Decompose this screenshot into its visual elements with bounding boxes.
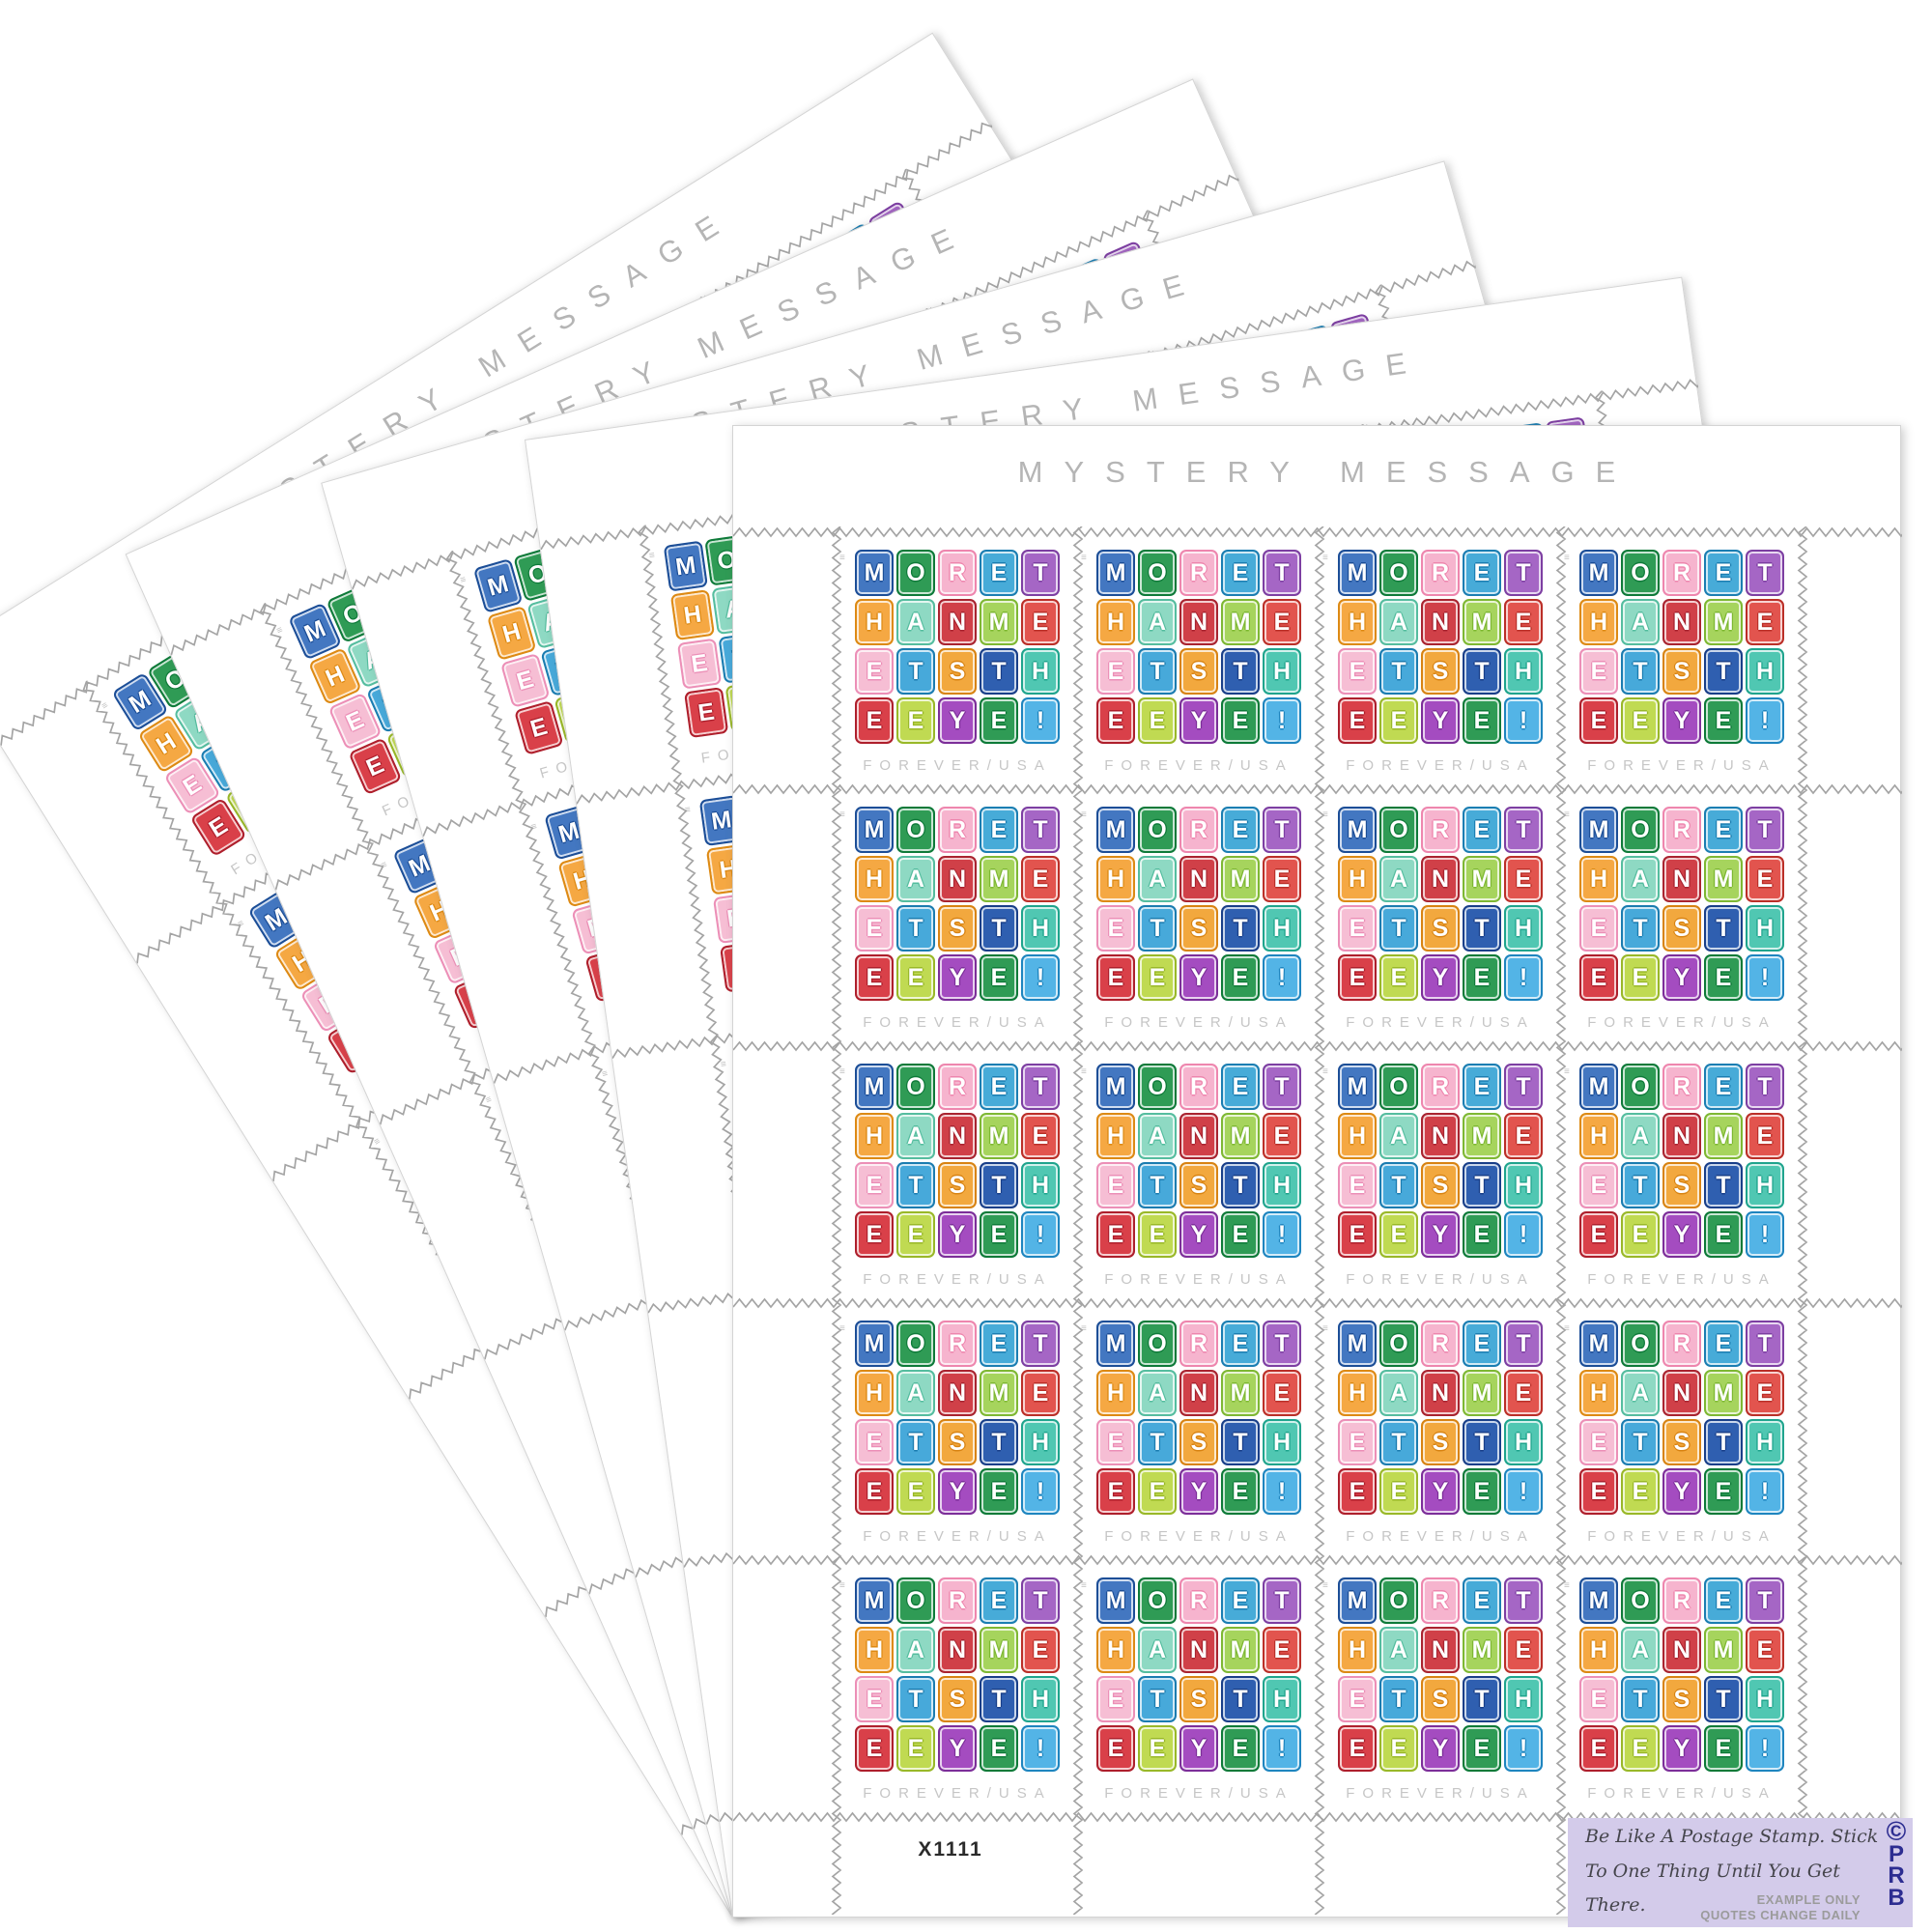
letter-tile-e: E bbox=[1021, 599, 1060, 645]
letter-tile-t: T bbox=[980, 648, 1018, 695]
letter-tile-e: E bbox=[1379, 954, 1418, 1001]
letter-tile-e: E bbox=[1338, 1162, 1377, 1208]
letter-tile-exclamation: ! bbox=[1746, 954, 1784, 1001]
letter-tile-m: M bbox=[1221, 856, 1260, 902]
letter-tile-s: S bbox=[1421, 905, 1460, 952]
letter-tile-o: O bbox=[1138, 550, 1177, 596]
letter-tile-t: T bbox=[1746, 1064, 1784, 1110]
letter-tile-grid: MORETHANMEETSTHEEYE! bbox=[1096, 550, 1301, 744]
letter-tile-h: H bbox=[1021, 1419, 1060, 1465]
letter-tile-a: A bbox=[896, 1627, 935, 1673]
disclaimer-line-1: EXAMPLE ONLY bbox=[1700, 1892, 1861, 1908]
letter-tile-y: Y bbox=[1662, 1468, 1701, 1515]
letter-tile-h: H bbox=[670, 589, 715, 640]
letter-tile-e: E bbox=[1221, 1064, 1260, 1110]
letter-tile-t: T bbox=[1504, 1321, 1543, 1367]
letter-tile-e: E bbox=[1504, 1370, 1543, 1416]
letter-tile-m: M bbox=[1579, 1321, 1618, 1367]
letter-tile-e: E bbox=[855, 1676, 894, 1722]
letter-tile-y: Y bbox=[1421, 1211, 1460, 1258]
letter-tile-t: T bbox=[1463, 905, 1501, 952]
letter-tile-m: M bbox=[855, 807, 894, 853]
letter-tile-e: E bbox=[980, 1577, 1018, 1624]
letter-tile-o: O bbox=[1621, 1064, 1660, 1110]
letter-tile-y: Y bbox=[1179, 1468, 1218, 1515]
letter-tile-e: E bbox=[1746, 599, 1784, 645]
letter-tile-s: S bbox=[1179, 1676, 1218, 1722]
letter-tile-e: E bbox=[980, 1064, 1018, 1110]
letter-tile-exclamation: ! bbox=[1504, 1211, 1543, 1258]
stamp: ≡MORETHANMEETSTHEEYE!FOREVER/USA bbox=[837, 1560, 1078, 1817]
letter-tile-e: E bbox=[980, 1725, 1018, 1772]
letter-tile-n: N bbox=[938, 1370, 977, 1416]
stamp: ≡MORETHANMEETSTHEEYE!FOREVER/USA bbox=[1078, 1560, 1320, 1817]
letter-tile-y: Y bbox=[1179, 697, 1218, 744]
perforation-line bbox=[1314, 526, 1325, 1915]
letter-tile-r: R bbox=[938, 1577, 977, 1624]
letter-tile-e: E bbox=[1021, 1370, 1060, 1416]
letter-tile-y: Y bbox=[938, 1211, 977, 1258]
letter-tile-e: E bbox=[855, 648, 894, 695]
letter-tile-n: N bbox=[1179, 1113, 1218, 1159]
letter-tile-h: H bbox=[855, 856, 894, 902]
letter-tile-e: E bbox=[980, 954, 1018, 1001]
stamp: ≡MORETHANMEETSTHEEYE!FOREVER/USA bbox=[1320, 1303, 1561, 1560]
letter-tile-s: S bbox=[1421, 648, 1460, 695]
letter-tile-o: O bbox=[1138, 1577, 1177, 1624]
letter-tile-e: E bbox=[1096, 1725, 1135, 1772]
letter-tile-s: S bbox=[938, 648, 977, 695]
stamp: ≡MORETHANMEETSTHEEYE!FOREVER/USA bbox=[1320, 532, 1561, 789]
letter-tile-e: E bbox=[1704, 1577, 1743, 1624]
letter-tile-e: E bbox=[1621, 1468, 1660, 1515]
letter-tile-e: E bbox=[1096, 1468, 1135, 1515]
letter-tile-grid: MORETHANMEETSTHEEYE! bbox=[1579, 550, 1784, 744]
letter-tile-a: A bbox=[1621, 1627, 1660, 1673]
watermark-letter-b: B bbox=[1883, 1888, 1910, 1909]
letter-tile-h: H bbox=[855, 1370, 894, 1416]
letter-tile-r: R bbox=[1662, 1321, 1701, 1367]
stamp: ≡MORETHANMEETSTHEEYE!FOREVER/USA bbox=[1561, 1560, 1803, 1817]
stamp: ≡MORETHANMEETSTHEEYE!FOREVER/USA bbox=[1078, 532, 1320, 789]
letter-tile-h: H bbox=[855, 1113, 894, 1159]
letter-tile-r: R bbox=[1421, 1064, 1460, 1110]
letter-tile-m: M bbox=[855, 1321, 894, 1367]
letter-tile-e: E bbox=[1463, 1468, 1501, 1515]
letter-tile-h: H bbox=[1746, 648, 1784, 695]
letter-tile-e: E bbox=[1096, 648, 1135, 695]
letter-tile-s: S bbox=[1179, 1162, 1218, 1208]
letter-tile-exclamation: ! bbox=[1746, 697, 1784, 744]
letter-tile-h: H bbox=[1096, 1113, 1135, 1159]
letter-tile-m: M bbox=[1096, 550, 1135, 596]
perforation-line bbox=[831, 526, 842, 1915]
letter-tile-t: T bbox=[1263, 1064, 1301, 1110]
stamp: ≡MORETHANMEETSTHEEYE!FOREVER/USA bbox=[1078, 1303, 1320, 1560]
letter-tile-n: N bbox=[1662, 599, 1701, 645]
letter-tile-e: E bbox=[855, 954, 894, 1001]
letter-tile-e: E bbox=[1704, 550, 1743, 596]
letter-tile-o: O bbox=[896, 1321, 935, 1367]
letter-tile-grid: MORETHANMEETSTHEEYE! bbox=[1096, 1577, 1301, 1772]
letter-tile-e: E bbox=[1746, 1370, 1784, 1416]
letter-tile-m: M bbox=[1463, 1113, 1501, 1159]
letter-tile-e: E bbox=[1463, 954, 1501, 1001]
letter-tile-e: E bbox=[1504, 1627, 1543, 1673]
letter-tile-t: T bbox=[1379, 1162, 1418, 1208]
letter-tile-t: T bbox=[1021, 1064, 1060, 1110]
letter-tile-grid: MORETHANMEETSTHEEYE! bbox=[1338, 1321, 1543, 1515]
denomination-label: FOREVER/USA bbox=[849, 1014, 1065, 1031]
letter-tile-e: E bbox=[1704, 1064, 1743, 1110]
letter-tile-e: E bbox=[1338, 1419, 1377, 1465]
letter-tile-e: E bbox=[1621, 954, 1660, 1001]
letter-tile-m: M bbox=[1221, 599, 1260, 645]
letter-tile-r: R bbox=[938, 1064, 977, 1110]
stamp: ≡MORETHANMEETSTHEEYE!FOREVER/USA bbox=[1561, 1046, 1803, 1303]
letter-tile-y: Y bbox=[1179, 1725, 1218, 1772]
letter-tile-e: E bbox=[855, 905, 894, 952]
letter-tile-o: O bbox=[1379, 1064, 1418, 1110]
letter-tile-exclamation: ! bbox=[1263, 954, 1301, 1001]
letter-tile-e: E bbox=[1221, 550, 1260, 596]
letter-tile-e: E bbox=[1463, 697, 1501, 744]
letter-tile-e: E bbox=[1338, 905, 1377, 952]
letter-tile-h: H bbox=[1504, 1676, 1543, 1722]
letter-tile-h: H bbox=[1746, 1162, 1784, 1208]
letter-tile-e: E bbox=[1463, 1321, 1501, 1367]
letter-tile-m: M bbox=[1221, 1113, 1260, 1159]
letter-tile-e: E bbox=[1504, 599, 1543, 645]
letter-tile-m: M bbox=[1221, 1370, 1260, 1416]
letter-tile-e: E bbox=[1263, 599, 1301, 645]
letter-tile-grid: MORETHANMEETSTHEEYE! bbox=[1338, 1064, 1543, 1258]
letter-tile-h: H bbox=[1021, 905, 1060, 952]
letter-tile-n: N bbox=[938, 1113, 977, 1159]
letter-tile-e: E bbox=[896, 954, 935, 1001]
letter-tile-y: Y bbox=[1421, 954, 1460, 1001]
letter-tile-h: H bbox=[1021, 1676, 1060, 1722]
letter-tile-m: M bbox=[1704, 1627, 1743, 1673]
letter-tile-h: H bbox=[1263, 1676, 1301, 1722]
letter-tile-m: M bbox=[855, 1577, 894, 1624]
letter-tile-t: T bbox=[1221, 1676, 1260, 1722]
letter-tile-t: T bbox=[1138, 1162, 1177, 1208]
letter-tile-y: Y bbox=[1421, 1468, 1460, 1515]
letter-tile-e: E bbox=[1704, 807, 1743, 853]
letter-tile-t: T bbox=[896, 905, 935, 952]
letter-tile-h: H bbox=[1338, 599, 1377, 645]
letter-tile-exclamation: ! bbox=[1504, 1468, 1543, 1515]
letter-tile-t: T bbox=[980, 1162, 1018, 1208]
letter-tile-o: O bbox=[896, 1064, 935, 1110]
letter-tile-h: H bbox=[1746, 1419, 1784, 1465]
letter-tile-e: E bbox=[1138, 1725, 1177, 1772]
letter-tile-t: T bbox=[1138, 1419, 1177, 1465]
denomination-label: FOREVER/USA bbox=[1574, 1785, 1790, 1802]
letter-tile-s: S bbox=[938, 1162, 977, 1208]
letter-tile-r: R bbox=[1662, 1577, 1701, 1624]
perforation-line bbox=[1555, 526, 1567, 1915]
letter-tile-t: T bbox=[1463, 1162, 1501, 1208]
letter-tile-m: M bbox=[855, 1064, 894, 1110]
letter-tile-h: H bbox=[1579, 1370, 1618, 1416]
letter-tile-e: E bbox=[1221, 807, 1260, 853]
denomination-label: FOREVER/USA bbox=[1574, 757, 1790, 774]
letter-tile-t: T bbox=[1746, 1321, 1784, 1367]
letter-tile-o: O bbox=[1138, 807, 1177, 853]
letter-tile-e: E bbox=[1704, 697, 1743, 744]
letter-tile-e: E bbox=[855, 1162, 894, 1208]
letter-tile-o: O bbox=[896, 550, 935, 596]
letter-tile-m: M bbox=[1463, 1627, 1501, 1673]
denomination-label: FOREVER/USA bbox=[849, 1271, 1065, 1288]
letter-tile-e: E bbox=[1579, 1676, 1618, 1722]
letter-tile-m: M bbox=[1096, 1577, 1135, 1624]
letter-tile-e: E bbox=[1621, 697, 1660, 744]
letter-tile-e: E bbox=[1221, 1468, 1260, 1515]
letter-tile-h: H bbox=[1263, 1419, 1301, 1465]
letter-tile-t: T bbox=[1463, 648, 1501, 695]
stamp: ≡MORETHANMEETSTHEEYE!FOREVER/USA bbox=[1561, 789, 1803, 1046]
letter-tile-h: H bbox=[1746, 905, 1784, 952]
letter-tile-t: T bbox=[1621, 905, 1660, 952]
letter-tile-s: S bbox=[1662, 1419, 1701, 1465]
letter-tile-y: Y bbox=[1179, 1211, 1218, 1258]
letter-tile-grid: MORETHANMEETSTHEEYE! bbox=[855, 550, 1060, 744]
disclaimer-line-2: QUOTES CHANGE DAILY bbox=[1700, 1908, 1861, 1923]
letter-tile-r: R bbox=[1421, 550, 1460, 596]
letter-tile-t: T bbox=[1221, 905, 1260, 952]
letter-tile-t: T bbox=[1221, 648, 1260, 695]
letter-tile-s: S bbox=[938, 1419, 977, 1465]
letter-tile-e: E bbox=[896, 1211, 935, 1258]
letter-tile-e: E bbox=[1221, 1725, 1260, 1772]
letter-tile-e: E bbox=[1579, 1468, 1618, 1515]
letter-tile-o: O bbox=[1379, 550, 1418, 596]
letter-tile-exclamation: ! bbox=[1263, 1468, 1301, 1515]
letter-tile-e: E bbox=[1746, 856, 1784, 902]
letter-tile-o: O bbox=[1379, 1577, 1418, 1624]
letter-tile-n: N bbox=[1421, 1627, 1460, 1673]
letter-tile-e: E bbox=[1463, 1211, 1501, 1258]
letter-tile-h: H bbox=[1579, 856, 1618, 902]
letter-tile-h: H bbox=[1263, 648, 1301, 695]
letter-tile-s: S bbox=[1421, 1162, 1460, 1208]
letter-tile-m: M bbox=[980, 1627, 1018, 1673]
stamp: ≡MORETHANMEETSTHEEYE!FOREVER/USA bbox=[837, 789, 1078, 1046]
letter-tile-r: R bbox=[1662, 550, 1701, 596]
letter-tile-exclamation: ! bbox=[1021, 697, 1060, 744]
letter-tile-grid: MORETHANMEETSTHEEYE! bbox=[855, 807, 1060, 1001]
letter-tile-t: T bbox=[1379, 1419, 1418, 1465]
letter-tile-h: H bbox=[1021, 648, 1060, 695]
letter-tile-e: E bbox=[1621, 1725, 1660, 1772]
letter-tile-m: M bbox=[1463, 856, 1501, 902]
denomination-label: FOREVER/USA bbox=[1332, 1785, 1548, 1802]
letter-tile-e: E bbox=[1021, 1627, 1060, 1673]
letter-tile-m: M bbox=[1096, 807, 1135, 853]
letter-tile-a: A bbox=[1379, 1627, 1418, 1673]
letter-tile-e: E bbox=[1463, 1064, 1501, 1110]
letter-tile-e: E bbox=[1579, 1419, 1618, 1465]
letter-tile-y: Y bbox=[938, 954, 977, 1001]
letter-tile-s: S bbox=[1421, 1676, 1460, 1722]
letter-tile-e: E bbox=[1379, 1725, 1418, 1772]
letter-tile-exclamation: ! bbox=[1263, 1211, 1301, 1258]
letter-tile-n: N bbox=[1179, 1627, 1218, 1673]
letter-tile-r: R bbox=[1421, 1321, 1460, 1367]
letter-tile-e: E bbox=[1379, 697, 1418, 744]
letter-tile-t: T bbox=[1021, 1321, 1060, 1367]
letter-tile-exclamation: ! bbox=[1263, 697, 1301, 744]
letter-tile-t: T bbox=[1621, 648, 1660, 695]
perforation-line bbox=[1797, 526, 1808, 1915]
letter-tile-h: H bbox=[1338, 1370, 1377, 1416]
letter-tile-e: E bbox=[1263, 1113, 1301, 1159]
letter-tile-exclamation: ! bbox=[1504, 1725, 1543, 1772]
denomination-label: FOREVER/USA bbox=[1574, 1271, 1790, 1288]
letter-tile-e: E bbox=[1746, 1113, 1784, 1159]
letter-tile-r: R bbox=[1179, 1321, 1218, 1367]
letter-tile-t: T bbox=[896, 648, 935, 695]
letter-tile-e: E bbox=[855, 1211, 894, 1258]
letter-tile-m: M bbox=[1579, 807, 1618, 853]
letter-tile-n: N bbox=[938, 856, 977, 902]
letter-tile-y: Y bbox=[1421, 1725, 1460, 1772]
letter-tile-r: R bbox=[1421, 807, 1460, 853]
letter-tile-o: O bbox=[1379, 1321, 1418, 1367]
letter-tile-y: Y bbox=[938, 697, 977, 744]
letter-tile-a: A bbox=[896, 599, 935, 645]
letter-tile-grid: MORETHANMEETSTHEEYE! bbox=[1579, 1064, 1784, 1258]
letter-tile-grid: MORETHANMEETSTHEEYE! bbox=[1096, 1064, 1301, 1258]
letter-tile-n: N bbox=[1662, 1113, 1701, 1159]
letter-tile-t: T bbox=[1504, 1577, 1543, 1624]
letter-tile-e: E bbox=[1338, 1211, 1377, 1258]
stamp: ≡MORETHANMEETSTHEEYE!FOREVER/USA bbox=[1078, 1046, 1320, 1303]
stamp-product-image: MYSTERY MESSAGE ≡MORETHANMEETSTHEEYE!FOR… bbox=[0, 0, 1932, 1932]
letter-tile-e: E bbox=[1138, 1211, 1177, 1258]
sheet-stack: MYSTERY MESSAGE ≡MORETHANMEETSTHEEYE!FOR… bbox=[0, 0, 1932, 1932]
plate-number: X1111 bbox=[878, 1838, 1023, 1861]
letter-tile-t: T bbox=[1504, 1064, 1543, 1110]
letter-tile-e: E bbox=[1138, 954, 1177, 1001]
letter-tile-t: T bbox=[896, 1162, 935, 1208]
letter-tile-m: M bbox=[1704, 1370, 1743, 1416]
letter-tile-m: M bbox=[855, 550, 894, 596]
denomination-label: FOREVER/USA bbox=[1091, 1528, 1307, 1545]
letter-tile-s: S bbox=[1179, 1419, 1218, 1465]
letter-tile-h: H bbox=[1096, 599, 1135, 645]
letter-tile-t: T bbox=[1221, 1419, 1260, 1465]
letter-tile-grid: MORETHANMEETSTHEEYE! bbox=[1579, 1321, 1784, 1515]
letter-tile-e: E bbox=[1504, 1113, 1543, 1159]
stamp: ≡MORETHANMEETSTHEEYE!FOREVER/USA bbox=[1561, 1303, 1803, 1560]
letter-tile-o: O bbox=[1138, 1064, 1177, 1110]
letter-tile-e: E bbox=[1579, 1211, 1618, 1258]
letter-tile-h: H bbox=[1263, 1162, 1301, 1208]
letter-tile-grid: MORETHANMEETSTHEEYE! bbox=[1338, 1577, 1543, 1772]
letter-tile-m: M bbox=[1704, 1113, 1743, 1159]
letter-tile-n: N bbox=[1662, 1627, 1701, 1673]
letter-tile-h: H bbox=[1746, 1676, 1784, 1722]
disclaimer: EXAMPLE ONLY QUOTES CHANGE DAILY bbox=[1700, 1892, 1861, 1924]
denomination-label: FOREVER/USA bbox=[1091, 757, 1307, 774]
letter-tile-n: N bbox=[938, 599, 977, 645]
letter-tile-m: M bbox=[1579, 1577, 1618, 1624]
letter-tile-e: E bbox=[1504, 856, 1543, 902]
letter-tile-o: O bbox=[1621, 550, 1660, 596]
letter-tile-t: T bbox=[980, 1419, 1018, 1465]
letter-tile-t: T bbox=[1746, 550, 1784, 596]
letter-tile-exclamation: ! bbox=[1021, 1211, 1060, 1258]
letter-tile-exclamation: ! bbox=[1021, 1468, 1060, 1515]
letter-tile-exclamation: ! bbox=[1746, 1725, 1784, 1772]
letter-tile-o: O bbox=[1621, 1321, 1660, 1367]
letter-tile-a: A bbox=[1138, 599, 1177, 645]
letter-tile-e: E bbox=[980, 807, 1018, 853]
letter-tile-y: Y bbox=[1421, 697, 1460, 744]
letter-tile-a: A bbox=[1379, 599, 1418, 645]
letter-tile-grid: MORETHANMEETSTHEEYE! bbox=[1579, 807, 1784, 1001]
letter-tile-a: A bbox=[896, 1370, 935, 1416]
letter-tile-t: T bbox=[1021, 1577, 1060, 1624]
letter-tile-s: S bbox=[1179, 648, 1218, 695]
letter-tile-a: A bbox=[1621, 1370, 1660, 1416]
letter-tile-t: T bbox=[1263, 807, 1301, 853]
letter-tile-exclamation: ! bbox=[1021, 954, 1060, 1001]
letter-tile-t: T bbox=[1621, 1162, 1660, 1208]
letter-tile-e: E bbox=[1579, 697, 1618, 744]
letter-tile-t: T bbox=[1138, 1676, 1177, 1722]
letter-tile-e: E bbox=[1338, 954, 1377, 1001]
letter-tile-a: A bbox=[1621, 599, 1660, 645]
letter-tile-t: T bbox=[1021, 807, 1060, 853]
denomination-label: FOREVER/USA bbox=[1091, 1785, 1307, 1802]
letter-tile-e: E bbox=[1704, 954, 1743, 1001]
letter-tile-a: A bbox=[1138, 1370, 1177, 1416]
letter-tile-e: E bbox=[1221, 1211, 1260, 1258]
letter-tile-m: M bbox=[980, 599, 1018, 645]
letter-tile-t: T bbox=[1379, 1676, 1418, 1722]
letter-tile-t: T bbox=[1263, 550, 1301, 596]
letter-tile-s: S bbox=[938, 1676, 977, 1722]
letter-tile-r: R bbox=[938, 1321, 977, 1367]
letter-tile-m: M bbox=[664, 541, 708, 592]
letter-tile-t: T bbox=[896, 1676, 935, 1722]
letter-tile-exclamation: ! bbox=[1746, 1211, 1784, 1258]
letter-tile-t: T bbox=[1621, 1419, 1660, 1465]
letter-tile-r: R bbox=[938, 807, 977, 853]
quote-line-3: There. bbox=[1585, 1894, 1646, 1916]
letter-tile-r: R bbox=[1179, 550, 1218, 596]
letter-tile-s: S bbox=[1662, 1162, 1701, 1208]
letter-tile-t: T bbox=[1138, 905, 1177, 952]
letter-tile-e: E bbox=[1704, 1468, 1743, 1515]
stamp: ≡MORETHANMEETSTHEEYE!FOREVER/USA bbox=[1320, 1046, 1561, 1303]
letter-tile-e: E bbox=[1379, 1211, 1418, 1258]
letter-tile-a: A bbox=[1379, 1113, 1418, 1159]
letter-tile-e: E bbox=[1621, 1211, 1660, 1258]
letter-tile-s: S bbox=[938, 905, 977, 952]
letter-tile-t: T bbox=[1021, 550, 1060, 596]
letter-tile-h: H bbox=[1338, 1113, 1377, 1159]
denomination-label: FOREVER/USA bbox=[1574, 1528, 1790, 1545]
denomination-label: FOREVER/USA bbox=[849, 757, 1065, 774]
denomination-label: FOREVER/USA bbox=[1332, 1528, 1548, 1545]
letter-tile-h: H bbox=[1338, 1627, 1377, 1673]
